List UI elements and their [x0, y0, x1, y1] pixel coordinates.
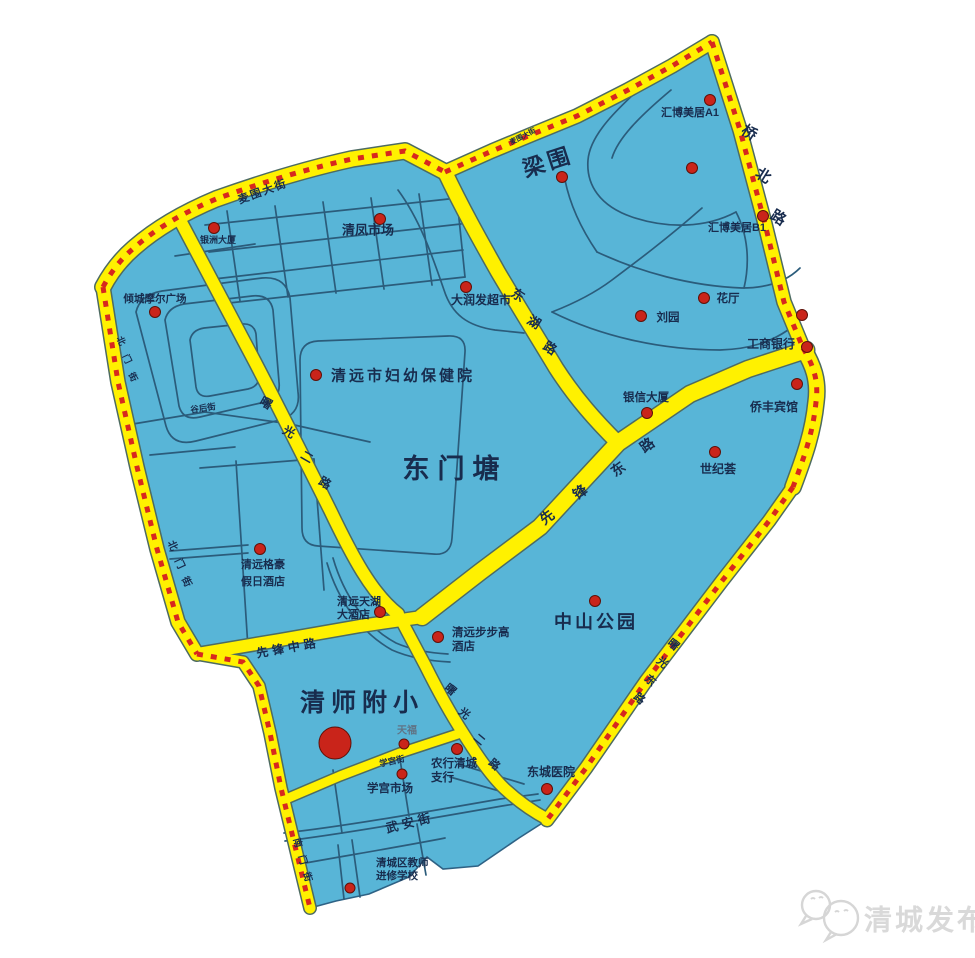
label-dongmentang: 东门塘 — [403, 453, 508, 484]
district-map-svg: 梁围东门塘中山公园清师附小汇博美居A1汇博美居B1花厅刘园工商银行银信大厦侨丰宾… — [0, 0, 975, 958]
watermark: 清城发布 — [801, 891, 975, 940]
dot-fuyou-hospital — [311, 370, 322, 381]
label-yinxin-dasha: 银信大厦 — [623, 390, 669, 404]
dot-shijihui — [710, 447, 721, 458]
dot-darunfa — [461, 282, 472, 293]
dot-nonghang — [452, 744, 463, 755]
label-tianfu: 天福 — [397, 724, 417, 737]
label-qingshifuxiao: 清师附小 — [300, 689, 424, 717]
wechat-doves-icon — [801, 891, 858, 940]
dot-xuegong-market — [397, 769, 407, 779]
dot-qiaobei — [797, 310, 808, 321]
dot-jiaoshi-school — [345, 883, 355, 893]
dot-tianfu — [399, 739, 409, 749]
dot-dongcheng-hospital — [542, 784, 553, 795]
map-canvas: 梁围东门塘中山公园清师附小汇博美居A1汇博美居B1花厅刘园工商银行银信大厦侨丰宾… — [0, 0, 975, 958]
dot-qingshifuxiao — [319, 727, 351, 759]
dot-liangwei — [557, 172, 568, 183]
label-xuegong-market: 学宫市场 — [367, 781, 413, 795]
label-liuyuan: 刘园 — [657, 310, 680, 324]
dot-huating — [699, 293, 710, 304]
dot-tianhu-hotel — [375, 607, 386, 618]
watermark-text: 清城发布 — [864, 904, 975, 936]
dot-yinzhou-dasha — [209, 223, 220, 234]
dot-gehao-hotel — [255, 544, 266, 555]
label-huating: 花厅 — [717, 291, 740, 305]
dot-zhongshan-park — [590, 596, 601, 607]
dot-qingcheng-moer — [150, 307, 161, 318]
label-qingcheng-moer: 倾城摩尔广场 — [123, 292, 187, 305]
label-gongshang-bank: 工商银行 — [747, 336, 795, 351]
label-qingfeng-market: 清凤市场 — [342, 223, 394, 238]
label-yinzhou-dasha: 银洲大厦 — [200, 234, 237, 245]
label-fuyou-hospital: 清远市妇幼保健院 — [331, 367, 475, 385]
label-darunfa: 大润发超市 — [451, 292, 511, 307]
wechat-bubble-right — [824, 901, 858, 935]
wechat-bubble-left — [802, 891, 830, 919]
label-shijihui: 世纪荟 — [700, 461, 737, 476]
label-huibo-a1: 汇博美居A1 — [661, 105, 719, 119]
dot-yinxin-dasha — [642, 408, 653, 419]
dot-huibo-a1 — [705, 95, 716, 106]
dot-bubugao-hotel — [433, 632, 444, 643]
label-qiaofeng-hotel: 侨丰宾馆 — [749, 399, 798, 414]
dot-liangwei-east — [687, 163, 698, 174]
dot-gongshang-bank — [802, 342, 813, 353]
label-huibo-b1: 汇博美居B1 — [708, 220, 766, 234]
label-dongcheng-hospital: 东城医院 — [527, 764, 575, 779]
dot-qiaofeng-hotel — [792, 379, 803, 390]
dot-liuyuan — [636, 311, 647, 322]
label-zhongshan-park: 中山公园 — [554, 611, 638, 632]
